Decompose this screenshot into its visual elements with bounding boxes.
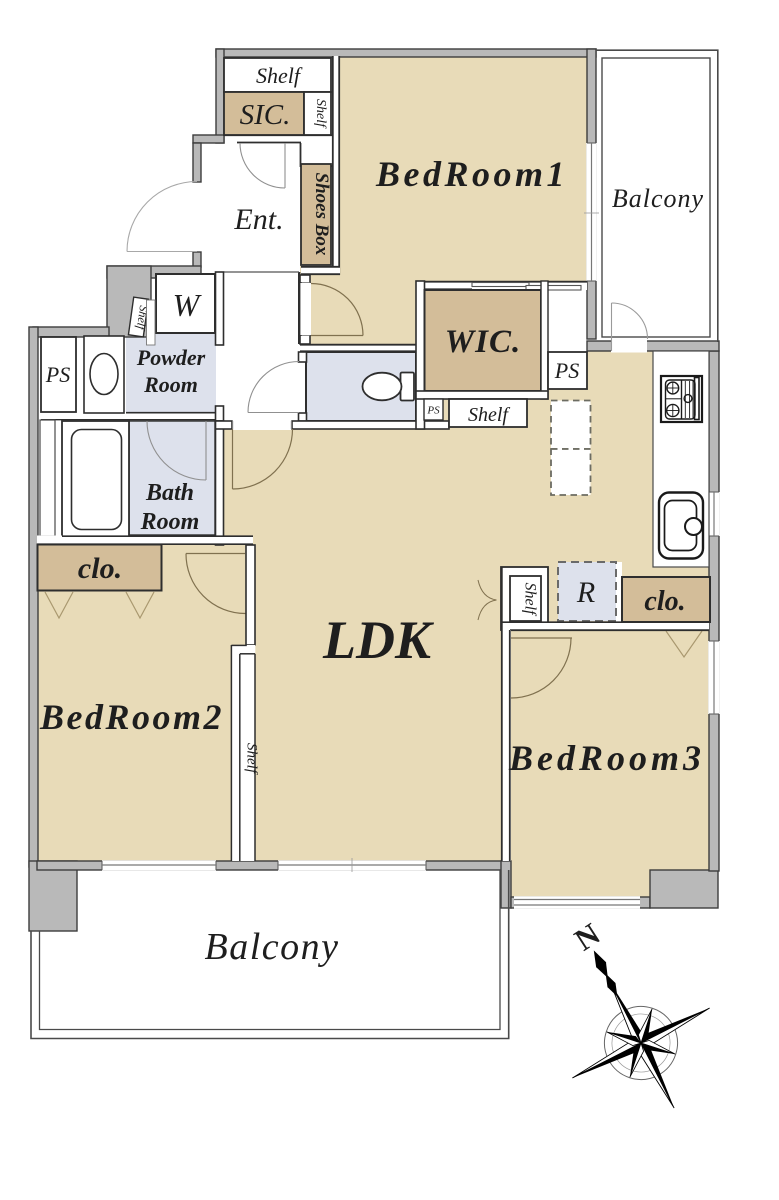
svg-text:clo.: clo.	[78, 552, 122, 585]
svg-text:BedRoom2: BedRoom2	[39, 697, 224, 737]
svg-text:SIC.: SIC.	[240, 99, 291, 131]
svg-text:Room: Room	[140, 509, 200, 535]
svg-text:W: W	[173, 287, 203, 323]
svg-text:Shelf: Shelf	[313, 99, 328, 129]
svg-text:Shoes Box: Shoes Box	[311, 173, 332, 256]
svg-text:Shelf: Shelf	[522, 583, 539, 618]
svg-text:LDK: LDK	[322, 610, 435, 670]
svg-text:Room: Room	[143, 372, 198, 397]
svg-text:Balcony: Balcony	[612, 184, 704, 213]
svg-text:R: R	[576, 576, 595, 609]
svg-text:Balcony: Balcony	[204, 926, 339, 968]
svg-text:Powder: Powder	[136, 345, 206, 370]
svg-text:Ent.: Ent.	[233, 203, 283, 236]
svg-text:Shelf: Shelf	[468, 404, 510, 426]
svg-text:Bath: Bath	[145, 480, 194, 506]
svg-text:PS: PS	[45, 362, 70, 387]
svg-text:Shelf: Shelf	[244, 743, 260, 775]
svg-text:Shelf: Shelf	[256, 63, 303, 88]
svg-text:PS: PS	[426, 405, 440, 417]
svg-text:WIC.: WIC.	[445, 324, 521, 360]
svg-text:BedRoom1: BedRoom1	[375, 154, 568, 194]
svg-text:BedRoom3: BedRoom3	[508, 738, 705, 778]
svg-text:PS: PS	[554, 358, 579, 383]
svg-text:clo.: clo.	[644, 586, 685, 617]
